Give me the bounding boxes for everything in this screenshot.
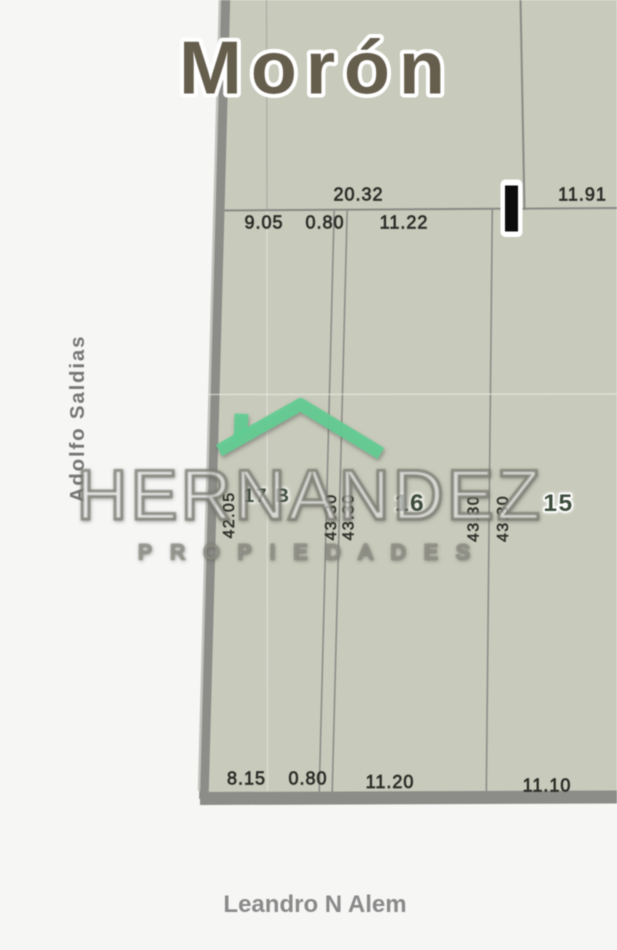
svg-text:11.20: 11.20	[366, 772, 415, 792]
svg-text:0.80: 0.80	[288, 769, 327, 789]
svg-text:11.91: 11.91	[558, 185, 607, 205]
svg-text:Morón: Morón	[179, 26, 445, 110]
svg-text:9.05: 9.05	[244, 213, 283, 233]
svg-text:HERNANDEZ: HERNANDEZ	[77, 455, 544, 534]
svg-text:15: 15	[543, 490, 573, 517]
svg-text:11.10: 11.10	[523, 776, 572, 796]
svg-text:PROPIEDADES: PROPIEDADES	[138, 541, 488, 564]
svg-text:8.15: 8.15	[227, 769, 266, 789]
svg-text:11.22: 11.22	[380, 213, 429, 233]
svg-text:Leandro N Alem: Leandro N Alem	[223, 891, 406, 918]
svg-text:0.80: 0.80	[305, 213, 344, 233]
svg-text:20.32: 20.32	[333, 185, 383, 205]
